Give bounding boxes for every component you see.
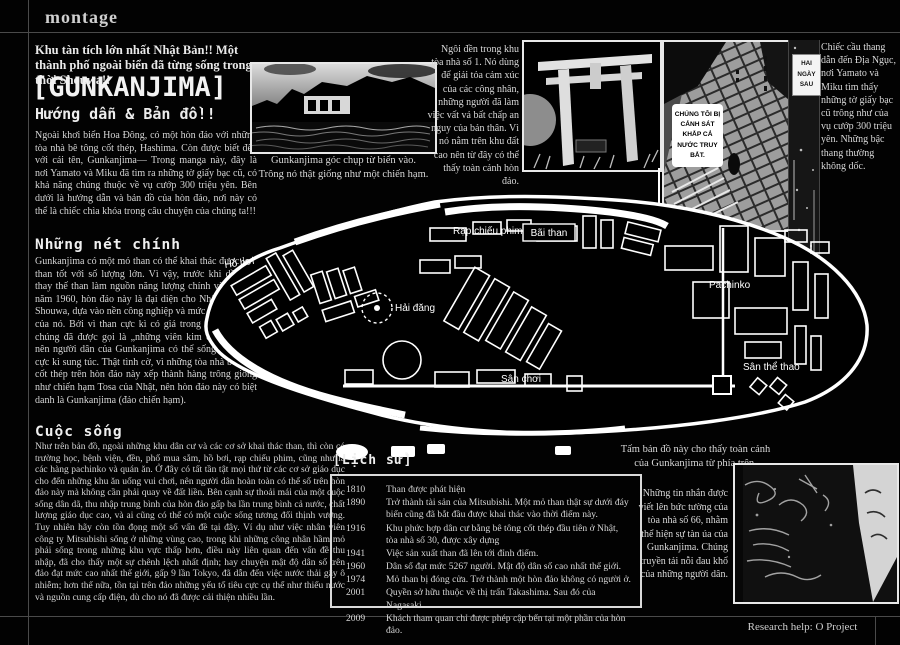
history-year: 1974 — [346, 574, 374, 586]
history-event: Khách tham quan chỉ được phép cập bến tạ… — [386, 613, 632, 637]
history-row: 1941Việc sản xuất than đã lên tới đỉnh đ… — [346, 548, 632, 560]
history-event: Trở thành tài sản của Mitsubishi. Một mỏ… — [386, 497, 632, 521]
footer-rule — [875, 616, 876, 645]
torii-photo — [522, 40, 662, 172]
walls-photo — [733, 463, 899, 604]
walls-graphic — [735, 465, 897, 602]
section-heading-main-features: Những nét chính — [35, 237, 181, 253]
history-row: 1890Trở thành tài sản của Mitsubishi. Mộ… — [346, 497, 632, 521]
map-label-cinema: Rạp chiếu phim — [453, 225, 522, 237]
history-year: 1941 — [346, 548, 374, 560]
map-label-playground: Sân chơi — [501, 374, 541, 385]
section-body-life: Như trên bản đồ, ngoài những khu dân cư … — [35, 442, 345, 604]
page-subtitle: Hướng dẫn & Bản đồ!! — [35, 105, 216, 123]
map-label-coal-box: Bãi than — [523, 224, 575, 241]
manga-info-page: montage Khu tàn tích lớn nhất Nhật Bản!!… — [0, 0, 900, 645]
sea-view-photo — [250, 62, 437, 154]
left-margin-rule — [28, 0, 29, 645]
map-label-lighthouse: Hải đăng — [395, 303, 435, 314]
history-row: 1916Khu phức hợp dân cư bằng bê tông cốt… — [346, 523, 632, 547]
history-event: Dân số đạt mức 5267 người. Mật độ dân số… — [386, 561, 632, 573]
history-row: 1810Than được phát hiện — [346, 484, 632, 496]
history-year: 1890 — [346, 497, 374, 521]
map-label-pachinko: Pachinko — [709, 280, 751, 291]
time-label: HAI NGÀY SAU — [792, 54, 821, 96]
page-title: [GUNKANJIMA] — [32, 72, 227, 103]
history-year: 1960 — [346, 561, 374, 573]
shrine-note: Ngôi đền trong khu tòa nhà số 1. Nó dùng… — [427, 43, 519, 188]
history-row: 2001Quyền sở hữu thuộc về thị trấn Takas… — [346, 587, 632, 611]
history-row: 1974Mỏ than bị đóng cửa. Trở thành một h… — [346, 574, 632, 586]
map-label-coal: Bãi than — [531, 228, 568, 239]
history-row: 2009Khách tham quan chỉ được phép cập bế… — [346, 613, 632, 637]
history-year: 1916 — [346, 523, 374, 547]
history-event: Than được phát hiện — [386, 484, 632, 496]
walls-note: Những tin nhắn được viết lên bức tường c… — [634, 487, 728, 582]
history-event: Quyền sở hữu thuộc về thị trấn Takashima… — [386, 587, 632, 611]
history-event: Khu phức hợp dân cư bằng bê tông cốt thé… — [386, 523, 632, 547]
history-box: 1810Than được phát hiện 1890Trở thành tà… — [330, 474, 642, 608]
history-year: 1810 — [346, 484, 374, 496]
history-year: 2001 — [346, 587, 374, 611]
stairs-note: Chiếc cầu thang dẫn đến Địa Ngục, nơi Ya… — [821, 41, 898, 173]
top-rule — [0, 32, 900, 33]
section-heading-life: Cuộc sống — [35, 424, 123, 440]
history-event: Mỏ than bị đóng cửa. Trở thành một hòn đ… — [386, 574, 632, 586]
history-year: 2009 — [346, 613, 374, 637]
sea-view-graphic — [252, 64, 435, 152]
history-row: 1960Dân số đạt mức 5267 người. Mật độ dâ… — [346, 561, 632, 573]
torii-graphic — [524, 42, 660, 170]
history-event: Việc sản xuất than đã lên tới đỉnh điểm. — [386, 548, 632, 560]
history-heading: [Lịch sử] — [333, 453, 412, 468]
speech-bubble: CHÚNG TÔI BỊ CẢNH SÁT KHẮP CẢ NƯỚC TRUY … — [672, 104, 723, 167]
island-map-graphic: Rạp chiếu phim Bãi than Hồ bơi Hải đăng … — [195, 190, 875, 465]
map-label-stadium: Sân thể thao — [743, 361, 800, 373]
research-credit: Research help: O Project — [735, 621, 870, 633]
magazine-brand: montage — [45, 7, 118, 28]
sea-view-caption: Gunkanjima góc chụp từ biển vào. Trông n… — [250, 154, 437, 181]
